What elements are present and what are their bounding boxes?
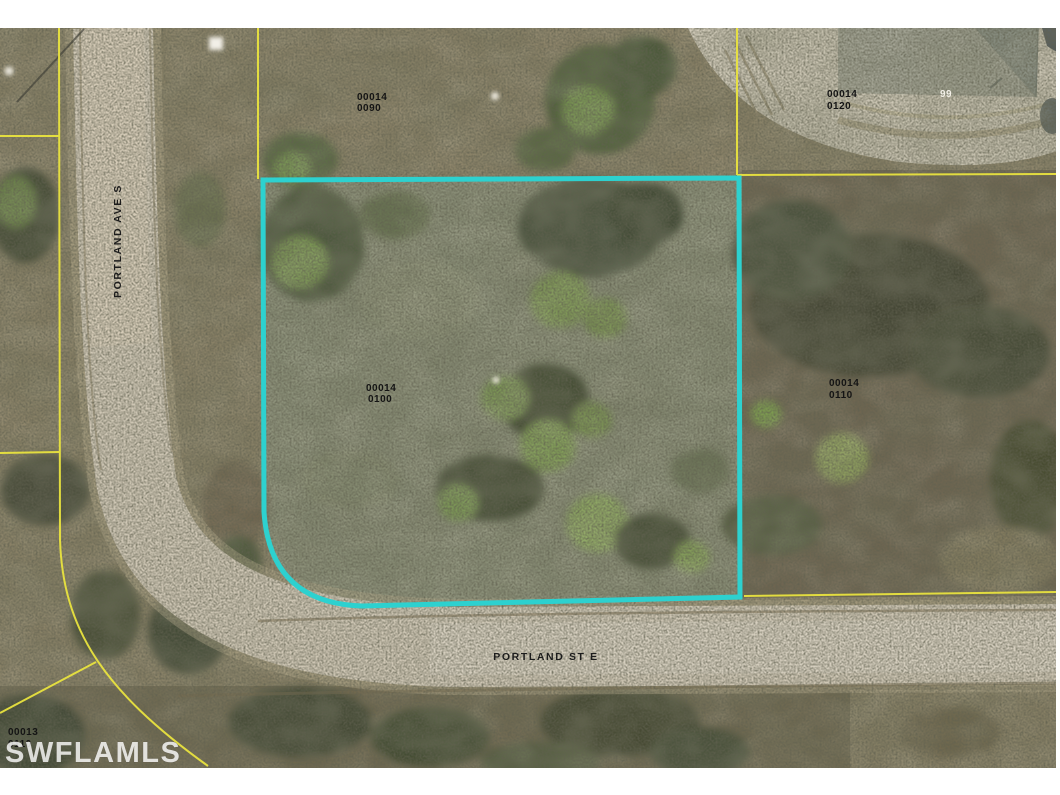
- parcel-label-0100-line1: 00014: [366, 383, 396, 394]
- street-label-portland-st-e: PORTLAND ST E: [493, 651, 598, 663]
- parcel-label-0110-east-line1: 00014: [829, 378, 859, 389]
- street-label-portland-ave-s: PORTLAND AVE S: [112, 184, 124, 298]
- parcel-line: [0, 452, 60, 453]
- parcel-label-0090-line2: 0090: [357, 103, 381, 114]
- parcel-line: [737, 174, 1060, 175]
- aerial-photo: 00014 0090 00014 0120 00014 0100 00014 0…: [0, 0, 1060, 795]
- parcel-label-0120-line2: 0120: [827, 101, 851, 112]
- parcel-label-0090-line1: 00014: [357, 92, 387, 103]
- parcel-label-0110-east-line2: 0110: [829, 390, 853, 401]
- parcel-label-0100-line2: 0100: [368, 394, 392, 405]
- mls-aerial-parcel-map: 00014 0090 00014 0120 00014 0100 00014 0…: [0, 0, 1060, 795]
- house-number-label: 99: [940, 89, 952, 100]
- parcel-label-0120-line1: 00014: [827, 89, 857, 100]
- watermark: SWFLAMLS: [5, 737, 181, 769]
